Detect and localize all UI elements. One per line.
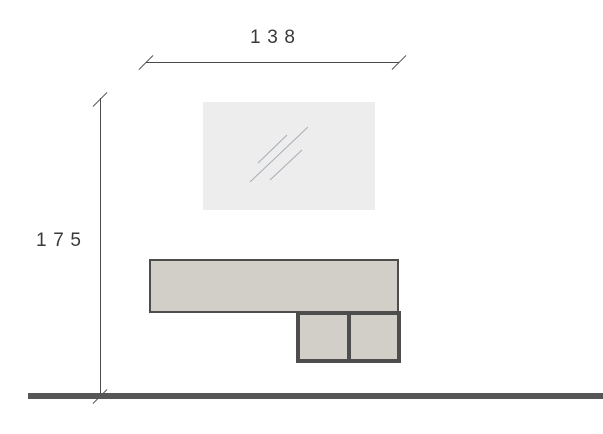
mirror-hatch-line	[270, 150, 302, 180]
width-dimension-label: 138	[250, 28, 302, 47]
mirror-panel	[203, 102, 375, 210]
floor-line	[28, 393, 603, 399]
drawer-unit	[296, 311, 401, 363]
mirror-reflection-hatch-icon	[203, 102, 375, 210]
mirror-hatch-line	[258, 135, 287, 163]
console-shelf	[149, 259, 399, 313]
width-dimension-line	[146, 62, 399, 63]
mirror-hatch-line	[250, 127, 308, 182]
drawer-left	[300, 315, 347, 359]
height-dimension-line	[100, 98, 101, 399]
drawer-right	[351, 315, 398, 359]
elevation-drawing-canvas: 138 175	[0, 0, 603, 434]
height-dimension-label: 175	[36, 231, 88, 250]
